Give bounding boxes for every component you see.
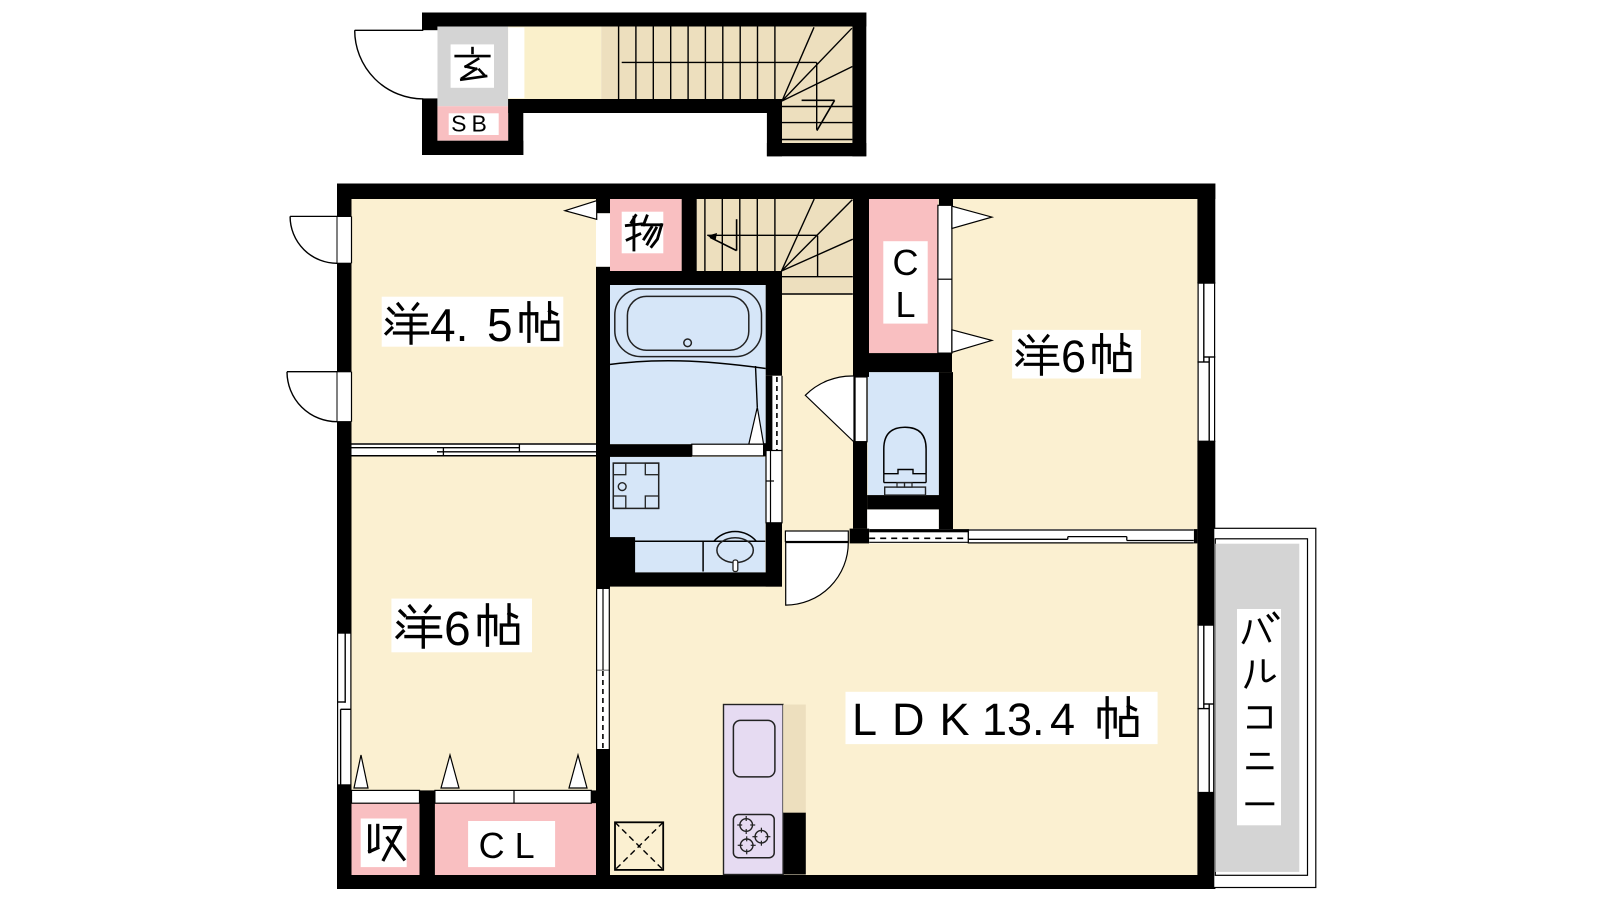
svg-text:5: 5: [487, 299, 513, 351]
svg-text:LDK: LDK: [852, 694, 985, 745]
svg-text:L: L: [895, 284, 915, 325]
svg-text:6: 6: [1061, 331, 1086, 382]
svg-text:CL: CL: [479, 825, 545, 866]
svg-text:C: C: [893, 242, 919, 283]
svg-text:4: 4: [1050, 694, 1075, 745]
svg-text:13.: 13.: [982, 694, 1045, 745]
svg-text:6: 6: [444, 603, 471, 656]
svg-text:SB: SB: [451, 111, 492, 137]
svg-text:4.: 4.: [430, 299, 468, 351]
